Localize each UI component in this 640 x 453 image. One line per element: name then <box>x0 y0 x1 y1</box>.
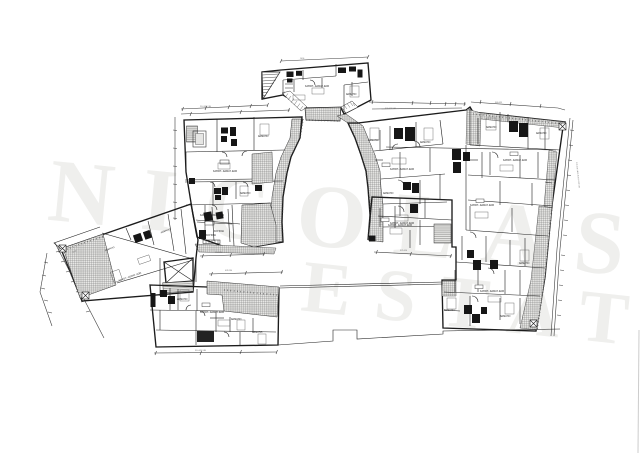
svg-text:ΚΑΘΙΣΤ.- ΔΩΜΑΤ. ΔΩΜ: ΚΑΘΙΣΤ.- ΔΩΜΑΤ. ΔΩΜ <box>470 204 494 207</box>
svg-text:3.25 4.10: 3.25 4.10 <box>400 250 407 252</box>
svg-text:ΚΑΘΙΣΤ.- ΔΩΜΑΤ. ΔΩΜ: ΚΑΘΙΣΤ.- ΔΩΜΑΤ. ΔΩΜ <box>305 85 329 88</box>
svg-text:ΚΑΘΙΣΤ.- ΔΩΜΑΤ. ΔΩΜ: ΚΑΘΙΣΤ.- ΔΩΜΑΤ. ΔΩΜ <box>503 159 527 162</box>
svg-text:ΚΑΘΙΣΤ.- ΔΩΜΑΤ. ΔΩΜ: ΚΑΘΙΣΤ.- ΔΩΜΑΤ. ΔΩΜ <box>200 311 224 314</box>
svg-text:ΚΑΘΙΣΤ.- ΔΩΜΑΤ. ΔΩΜ: ΚΑΘΙΣΤ.- ΔΩΜΑΤ. ΔΩΜ <box>390 168 414 171</box>
svg-text:14.90: 14.90 <box>300 58 304 60</box>
svg-text:ΚΑΘΙΣΤ.- ΔΩΜΑΤ. ΔΩΜ: ΚΑΘΙΣΤ.- ΔΩΜΑΤ. ΔΩΜ <box>480 290 504 293</box>
svg-text:ΔΩΜΑΤΙΟ: ΔΩΜΑΤΙΟ <box>500 315 511 318</box>
svg-text:ΔΩΜΑΤΙΟ: ΔΩΜΑΤΙΟ <box>258 135 269 138</box>
svg-text:ΔΩΜΑΤΙΟ: ΔΩΜΑΤΙΟ <box>444 309 455 312</box>
svg-text:ΔΩΜΑΤΙΟ: ΔΩΜΑΤΙΟ <box>519 262 530 265</box>
svg-text:2.90 3.15 2.80 3.25 3.10: 2.90 3.15 2.80 3.25 3.10 2.95 3.20 <box>575 162 580 188</box>
svg-text:ΚΑΘΙΣΤ.- ΔΩΜΑΤ. ΔΩΜ: ΚΑΘΙΣΤ.- ΔΩΜΑΤ. ΔΩΜ <box>388 224 412 227</box>
svg-text:ΔΩΜΑΤΙΟ: ΔΩΜΑΤΙΟ <box>486 126 497 129</box>
svg-text:ΔΩΜΑΤΙΟ: ΔΩΜΑΤΙΟ <box>240 192 251 195</box>
svg-text:ΚΑΘΙΣΤ.- ΔΩΜΑΤ. ΔΩΜ: ΚΑΘΙΣΤ.- ΔΩΜΑΤ. ΔΩΜ <box>213 170 237 173</box>
svg-text:ΚΟΥΖΙΝΑ: ΚΟΥΖΙΝΑ <box>206 234 216 237</box>
svg-text:ΔΩΜΑΤΙΟ: ΔΩΜΑΤΙΟ <box>252 331 263 334</box>
svg-text:ΔΩΜΑΤΙΟ: ΔΩΜΑΤΙΟ <box>368 139 379 142</box>
svg-text:3.30 4.15 3.60: 3.30 4.15 3.60 <box>385 108 396 110</box>
svg-text:ΔΩΜΑΤΙΟ: ΔΩΜΑΤΙΟ <box>536 132 547 135</box>
svg-text:ΔΩΜΑΤΙΟ: ΔΩΜΑΤΙΟ <box>383 192 394 195</box>
svg-text:3.10 4.20 3.80: 3.10 4.20 3.80 <box>195 350 206 352</box>
svg-text:ΚΟΥΖΙΝΑ: ΚΟΥΖΙΝΑ <box>214 230 224 233</box>
svg-text:ΔΩΜΑΤΙΟ: ΔΩΜΑΤΙΟ <box>346 93 357 96</box>
svg-text:ΔΩΜΑΤΙΟ: ΔΩΜΑΤΙΟ <box>231 318 242 321</box>
svg-text:2.10 3.25 2.80: 2.10 3.25 2.80 <box>200 106 211 108</box>
svg-text:ΔΩΜΑΤΙΟ: ΔΩΜΑΤΙΟ <box>420 141 431 144</box>
svg-text:1.50 3.20: 1.50 3.20 <box>215 252 222 254</box>
svg-text:4.35 2.90: 4.35 2.90 <box>225 270 232 272</box>
svg-text:3.80 4.25: 3.80 4.25 <box>495 102 502 104</box>
svg-text:ΔΩΜΑΤΙΟ: ΔΩΜΑΤΙΟ <box>177 298 188 301</box>
